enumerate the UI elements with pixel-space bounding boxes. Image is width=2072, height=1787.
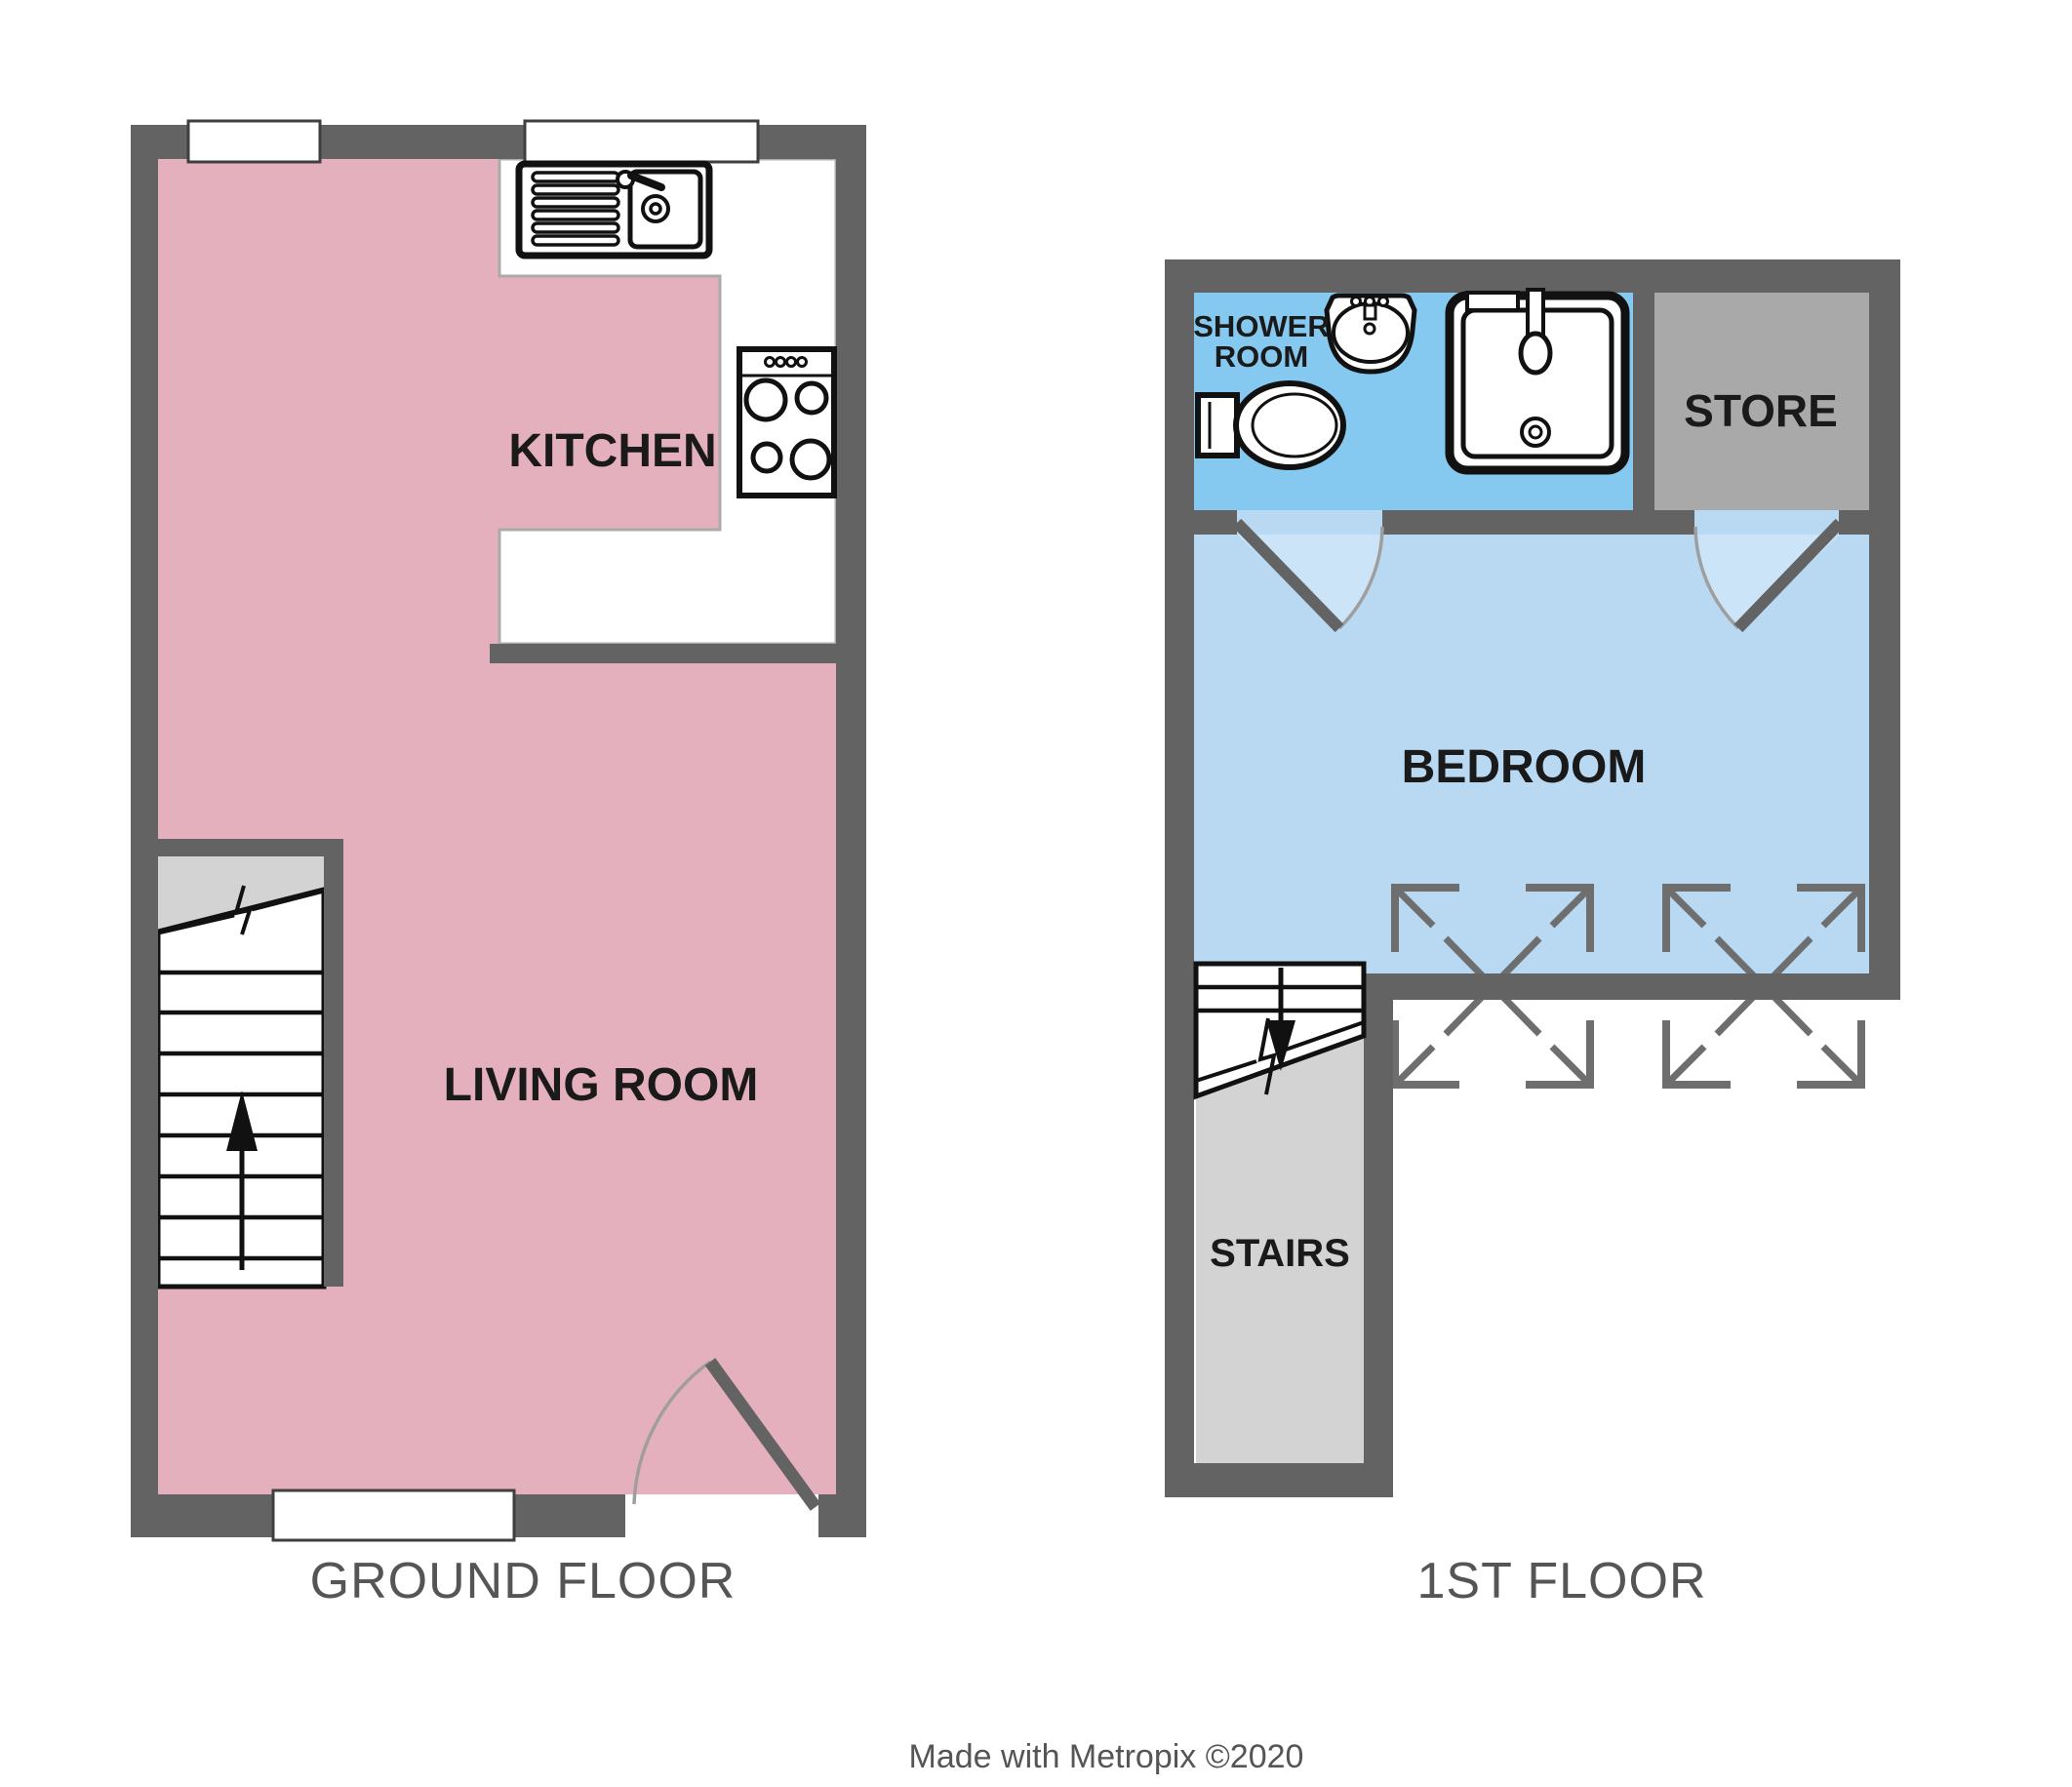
window-icon xyxy=(188,121,320,162)
shower-head xyxy=(1521,334,1550,373)
window-icon xyxy=(273,1490,514,1540)
bedroom-bottom-wall xyxy=(1364,973,1900,1000)
shower-store-divider-wall xyxy=(1633,293,1654,510)
stairs-up-icon xyxy=(154,856,324,1287)
window-icon xyxy=(525,121,758,162)
shower-room-label-line1: SHOWER xyxy=(1193,309,1330,343)
shower-shelf xyxy=(1467,293,1518,310)
stairs-label: STAIRS xyxy=(1210,1232,1350,1275)
ground-floor-title: GROUND FLOOR xyxy=(310,1553,737,1609)
kitchen-label: KITCHEN xyxy=(508,425,716,477)
shower-cubicle-icon xyxy=(1450,290,1625,470)
captions: GROUND FLOOR 1ST FLOOR Made with Metropi… xyxy=(310,1553,1707,1775)
stair-corridor-right-wall xyxy=(1364,973,1393,1497)
kitchen-sink-icon xyxy=(519,164,709,256)
first-top-wall xyxy=(1165,259,1900,293)
bedroom-label: BEDROOM xyxy=(1402,741,1647,793)
kitchen-living-wall xyxy=(490,644,866,663)
stairs-down-icon xyxy=(1196,964,1364,1463)
toilet-icon xyxy=(1198,383,1343,467)
stair-corridor-bottom-wall xyxy=(1165,1463,1393,1497)
stairs-side-wall xyxy=(324,856,343,1287)
store-bottom-wall-right xyxy=(1839,510,1869,535)
shower-bottom-wall-left xyxy=(1194,510,1237,535)
basin-icon xyxy=(1327,296,1415,372)
shower-riser-bar xyxy=(1528,290,1543,337)
shower-bottom-wall-right xyxy=(1382,510,1694,535)
store-label: STORE xyxy=(1684,385,1838,436)
stove-hob-icon xyxy=(739,349,834,496)
ground-left-wall xyxy=(131,125,158,1537)
floorplan-page: KITCHEN LIVING ROOM xyxy=(0,0,2072,1787)
stairs-top-wall xyxy=(131,839,343,856)
first-left-wall xyxy=(1165,259,1194,1497)
shower-room-label-line2: ROOM xyxy=(1215,339,1308,374)
first-right-wall xyxy=(1869,259,1900,1000)
toilet-cistern xyxy=(1198,395,1237,456)
floorplan-canvas: KITCHEN LIVING ROOM xyxy=(0,0,2072,1787)
living-room-label: LIVING ROOM xyxy=(444,1059,759,1111)
ground-floor-plan: KITCHEN LIVING ROOM xyxy=(131,121,866,1540)
first-floor-plan: SHOWER ROOM STORE BEDROOM STAIRS xyxy=(1165,259,1900,1497)
first-floor-title: 1ST FLOOR xyxy=(1416,1553,1706,1609)
ground-right-wall xyxy=(836,125,866,1537)
door-opening xyxy=(625,1494,818,1537)
metropix-credit: Made with Metropix ©2020 xyxy=(909,1738,1304,1775)
